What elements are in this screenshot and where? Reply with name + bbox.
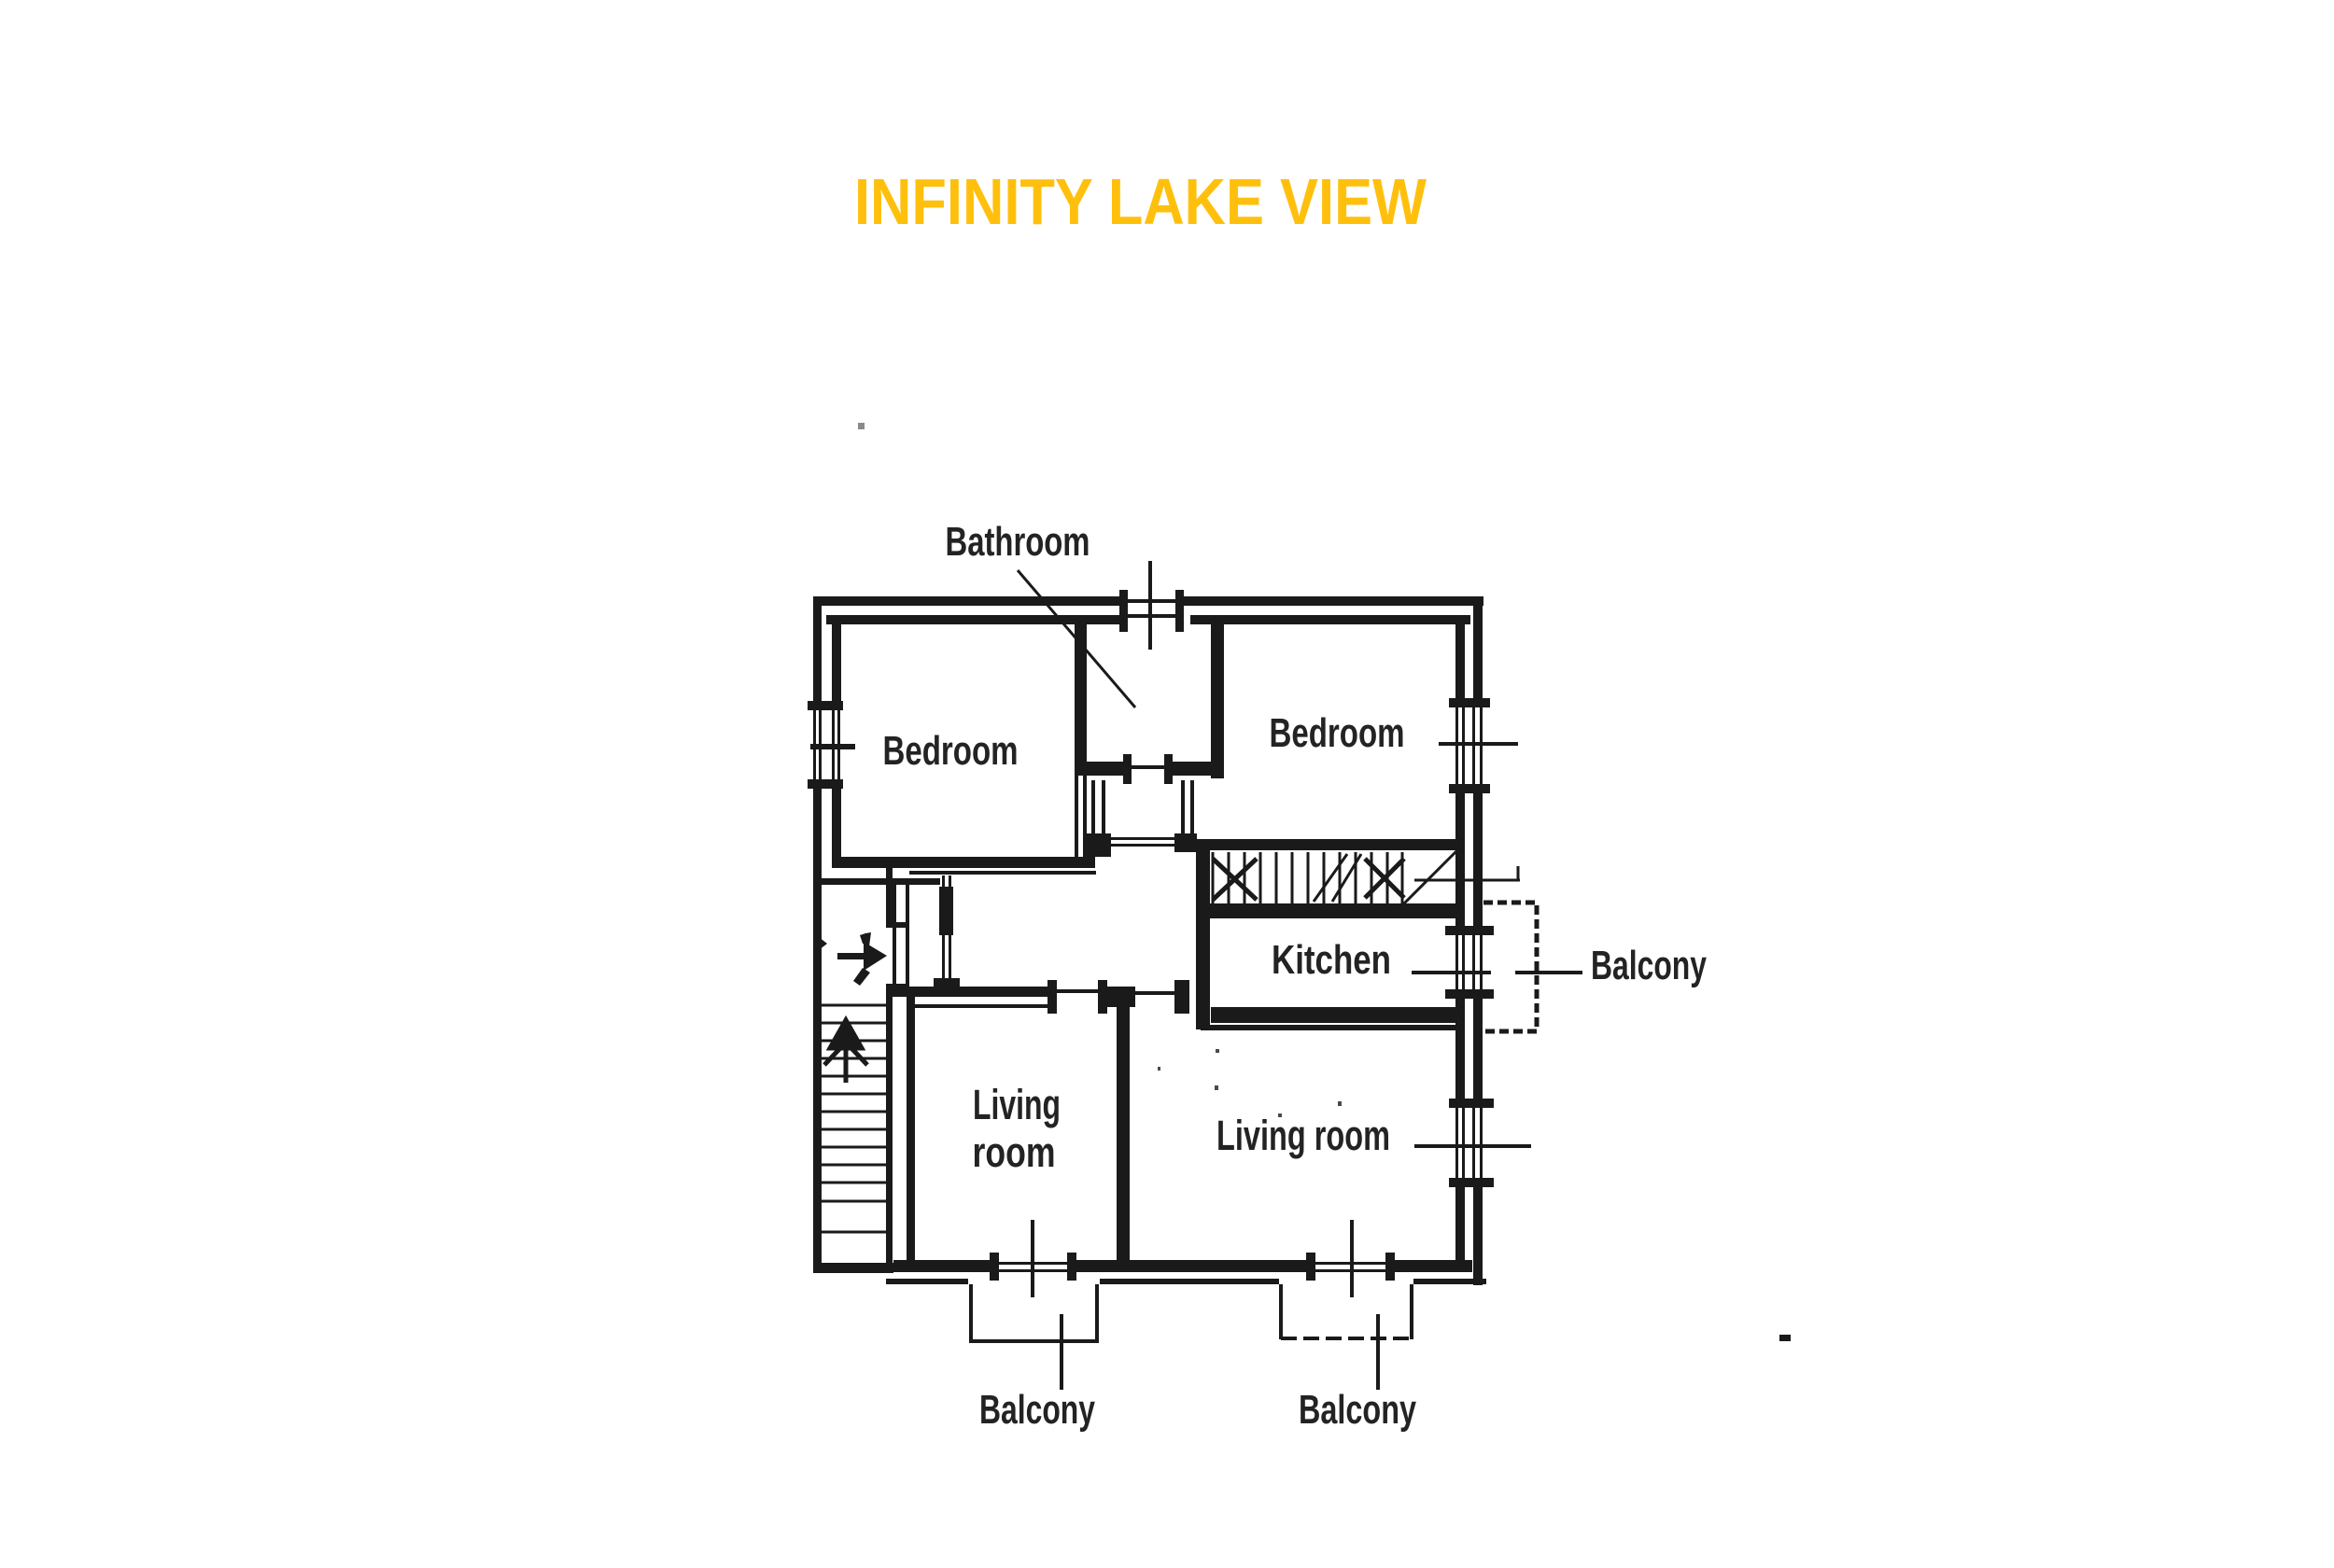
svg-text:Balcony: Balcony [979,1387,1095,1433]
svg-text:Living room: Living room [1216,1112,1390,1159]
svg-text:Kitchen: Kitchen [1272,937,1391,983]
svg-text:Balcony: Balcony [1591,943,1707,988]
svg-text:room: room [973,1128,1056,1176]
svg-text:Bedroom: Bedroom [883,728,1019,774]
svg-text:Balcony: Balcony [1299,1387,1416,1433]
svg-text:Bedroom: Bedroom [1270,710,1405,756]
svg-text:INFINITY LAKE VIEW: INFINITY LAKE VIEW [854,165,1427,238]
svg-text:Living: Living [973,1081,1061,1128]
svg-text:Bathroom: Bathroom [946,519,1090,565]
